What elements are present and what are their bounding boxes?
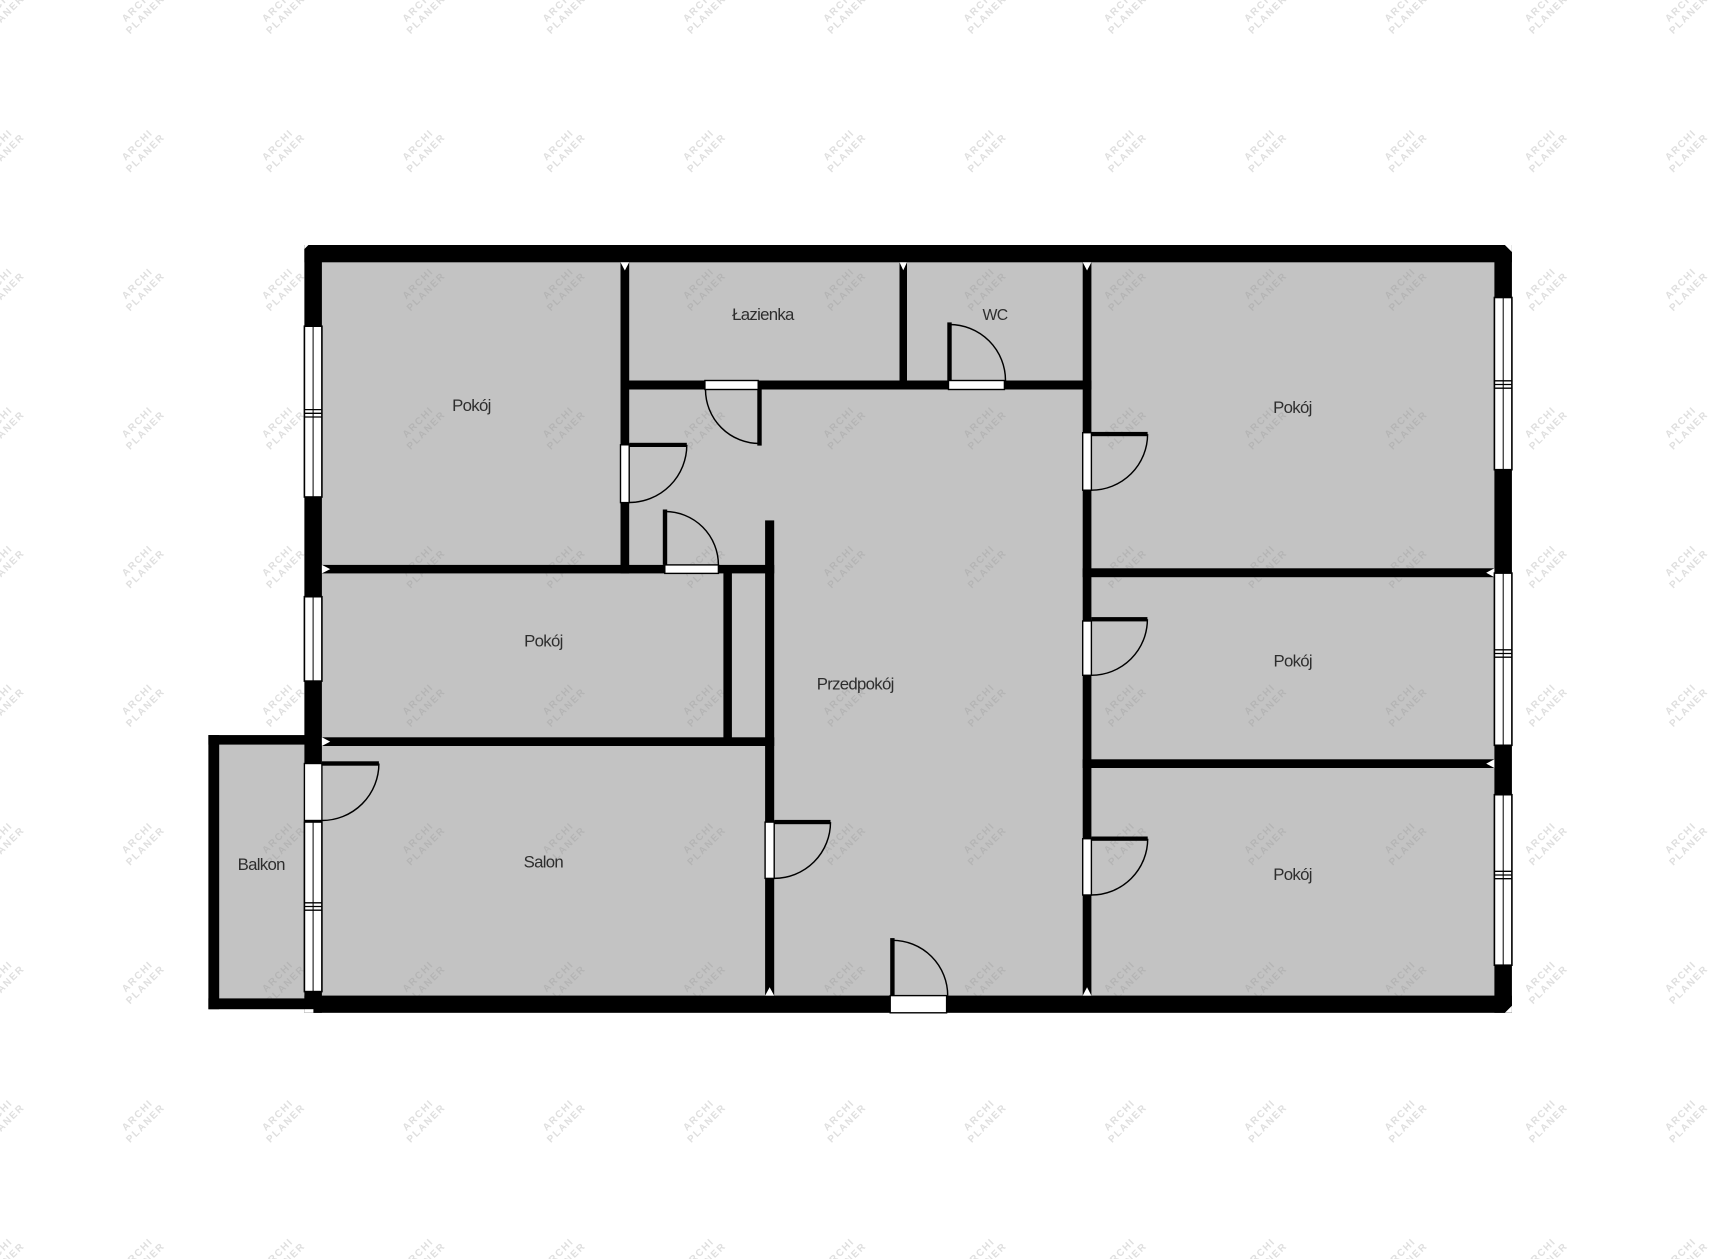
svg-text:Pokój: Pokój: [1273, 398, 1311, 417]
svg-text:Pokój: Pokój: [1273, 651, 1311, 670]
svg-text:Przedpokój: Przedpokój: [817, 675, 894, 694]
svg-text:Balkon: Balkon: [238, 855, 285, 874]
svg-text:Łazienka: Łazienka: [732, 305, 795, 324]
svg-text:Pokój: Pokój: [524, 632, 562, 651]
svg-text:Pokój: Pokój: [1273, 865, 1311, 884]
svg-text:Salon: Salon: [524, 852, 564, 871]
svg-text:Pokój: Pokój: [452, 396, 490, 415]
svg-text:WC: WC: [983, 307, 1008, 324]
